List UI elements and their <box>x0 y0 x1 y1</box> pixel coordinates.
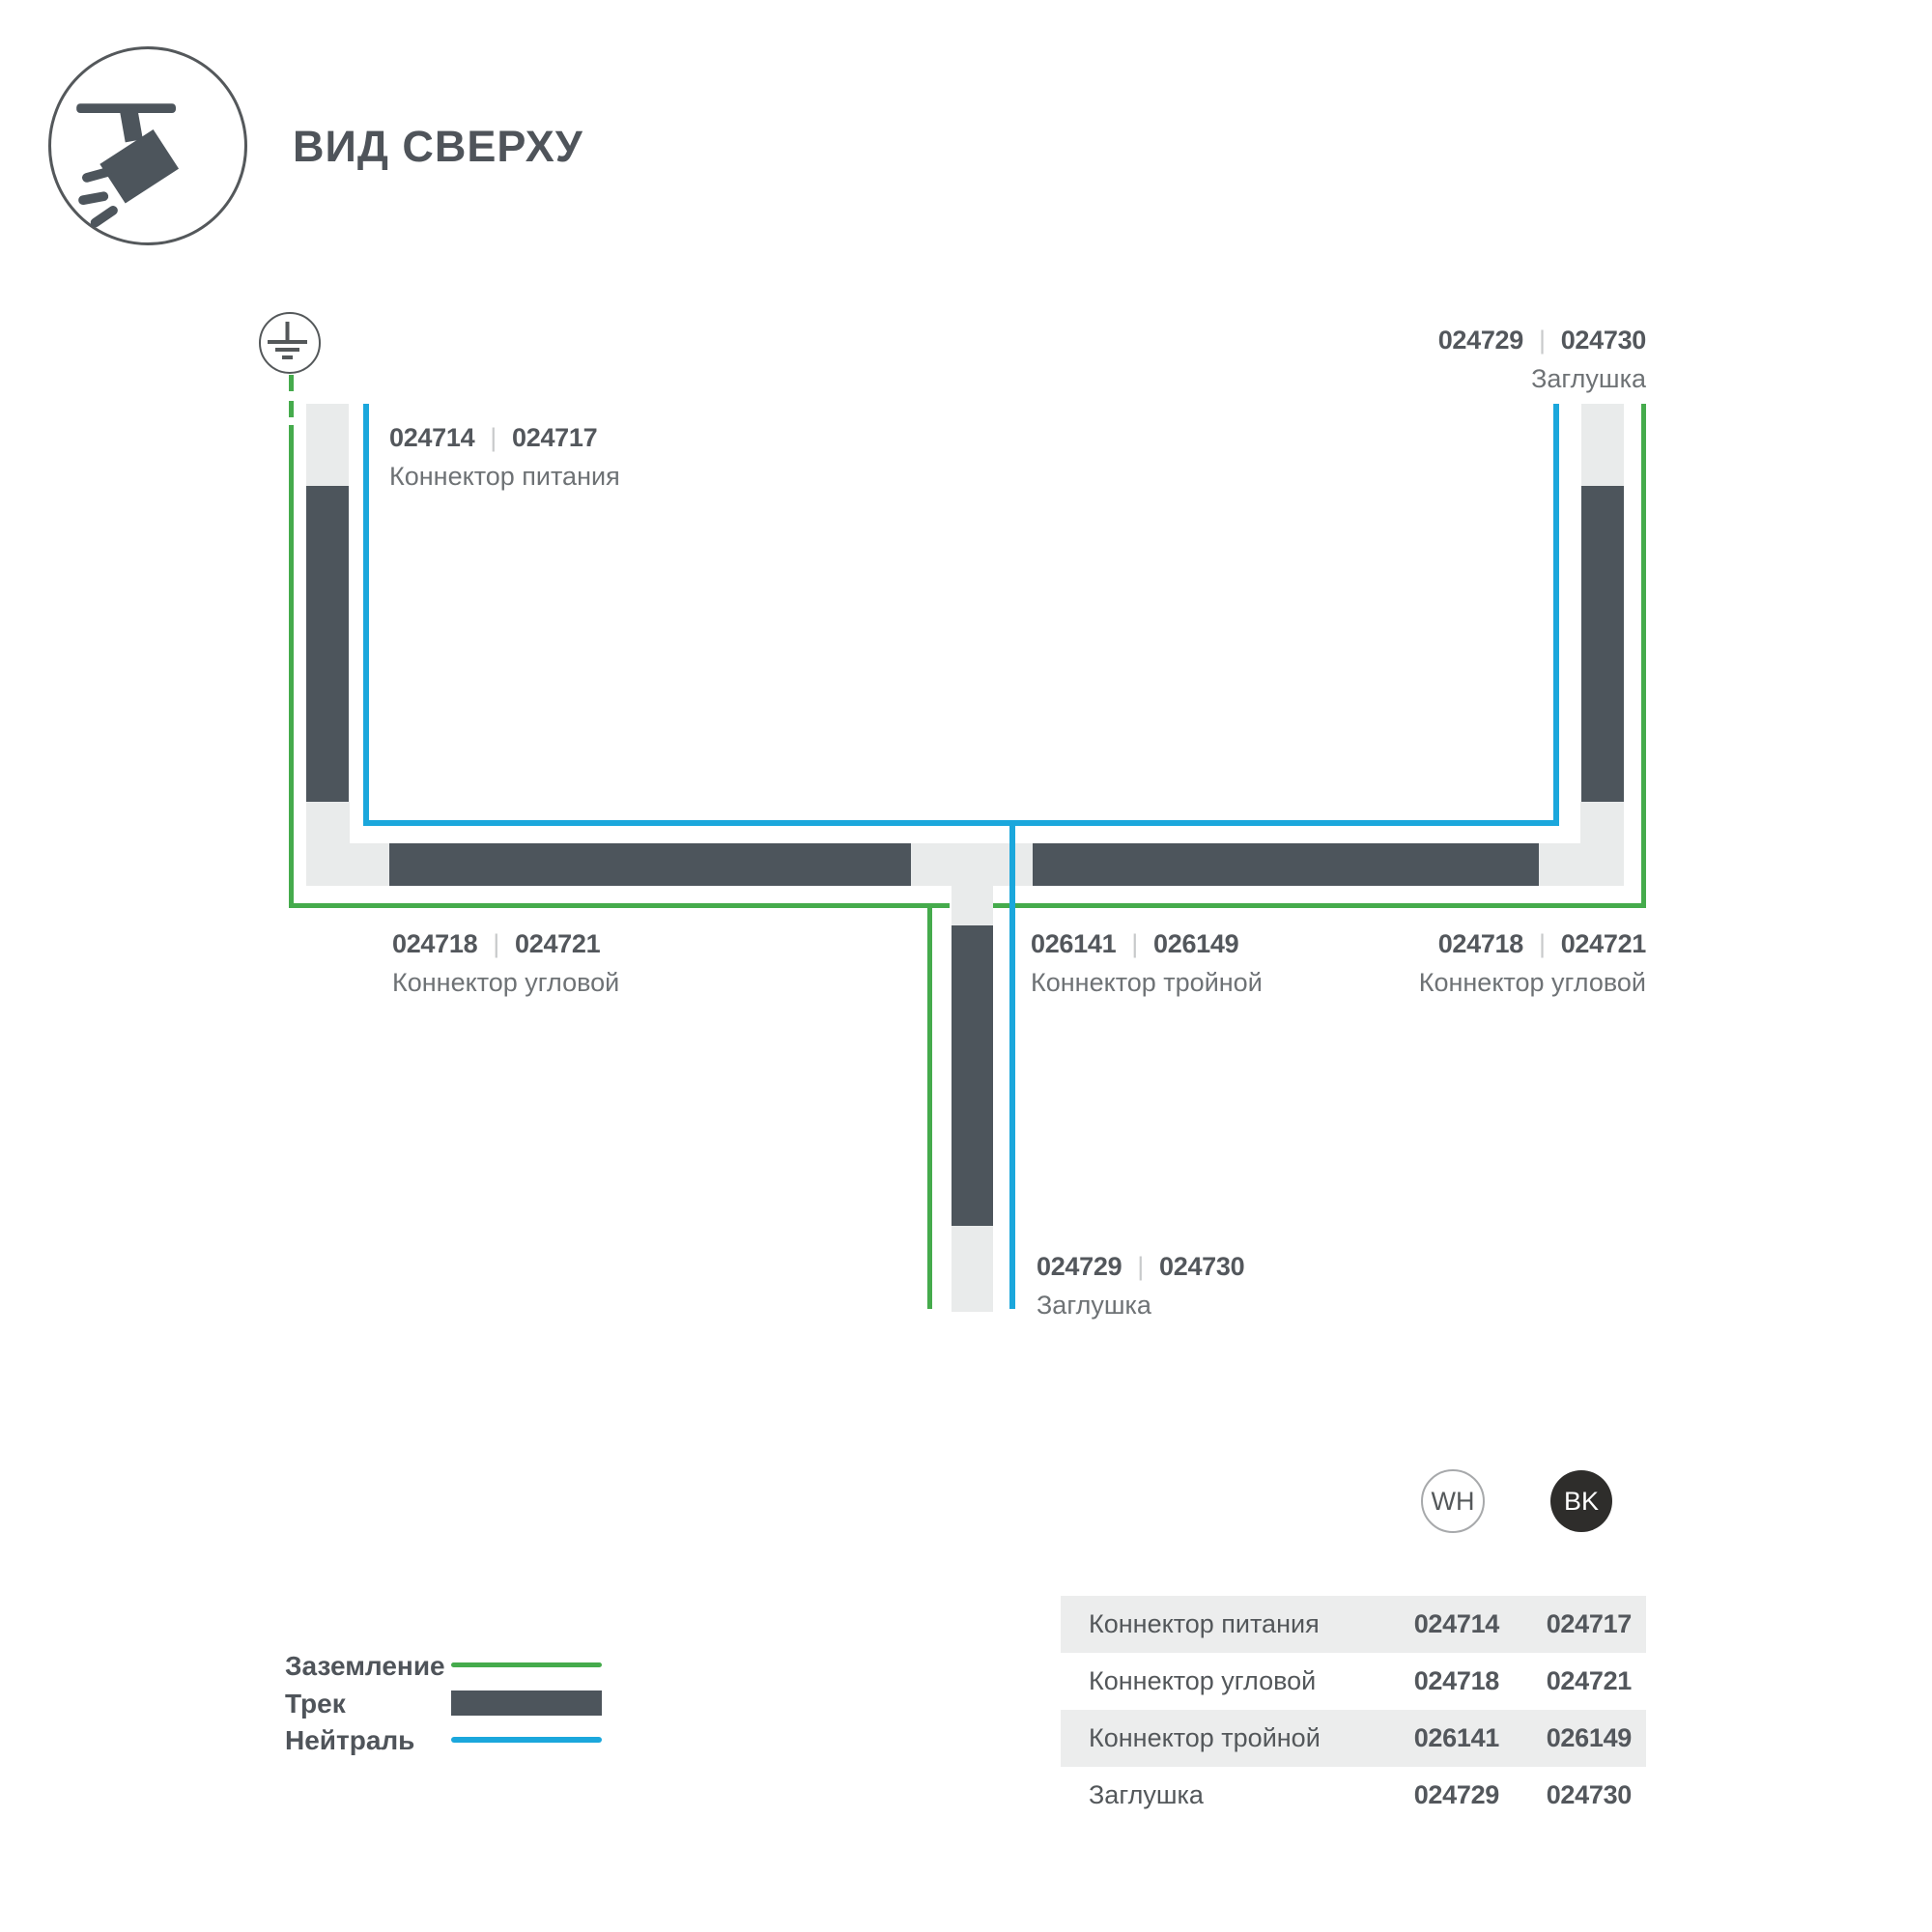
table-row: Коннектор угловой 024718 024721 <box>1061 1653 1646 1710</box>
part-name: Заглушка <box>1089 1780 1410 1810</box>
ground-line-bottom-left <box>289 903 950 908</box>
part-code-wh: 024714 <box>1410 1609 1499 1639</box>
track-branch-vertical <box>952 925 993 1226</box>
code-wh: 024718 <box>392 929 477 958</box>
code-wh: 024718 <box>1438 929 1523 958</box>
code-separator: | <box>474 423 512 452</box>
ground-line-branch-vertical <box>927 903 932 1309</box>
track-right-vertical <box>1581 486 1624 802</box>
label-caption: Коннектор угловой <box>392 968 619 997</box>
code-separator: | <box>477 929 515 958</box>
label-end-cap-bottom: 024729 | 024730 Заглушка <box>1037 1252 1244 1320</box>
neutral-line-branch-vertical <box>1009 820 1015 1309</box>
code-wh: 024729 <box>1438 326 1523 355</box>
ground-symbol <box>259 312 321 374</box>
ground-line-dashed <box>289 375 294 427</box>
code-bk: 024721 <box>515 929 600 958</box>
code-separator: | <box>1523 929 1561 958</box>
end-cap-top-left <box>306 404 349 487</box>
ground-line-left-vertical <box>289 425 294 908</box>
label-corner-connector-right: 024718 | 024721 Коннектор угловой <box>1419 929 1646 997</box>
track-left-vertical <box>306 486 349 802</box>
code-bk: 024730 <box>1159 1252 1244 1281</box>
part-code-wh: 024718 <box>1410 1666 1499 1696</box>
code-wh: 024714 <box>389 423 474 452</box>
legend-label-neutral: Нейтраль <box>285 1725 414 1756</box>
neutral-line-right-vertical <box>1553 404 1559 826</box>
label-power-connector: 024714 | 024717 Коннектор питания <box>389 423 620 491</box>
part-code-bk: 024717 <box>1543 1609 1632 1639</box>
ground-line-bottom-right <box>993 903 1646 908</box>
label-codes: 024714 | 024717 <box>389 423 620 452</box>
track-spotlight-icon <box>51 49 239 237</box>
part-name: Коннектор питания <box>1089 1609 1410 1639</box>
legend-neutral-line-swatch <box>451 1737 602 1743</box>
code-separator: | <box>1116 929 1153 958</box>
code-bk: 024721 <box>1561 929 1646 958</box>
part-name: Коннектор тройной <box>1089 1723 1410 1753</box>
track-bottom-right <box>1033 843 1539 886</box>
ground-line-right-vertical <box>1641 404 1646 908</box>
label-corner-connector-left: 024718 | 024721 Коннектор угловой <box>392 929 619 997</box>
label-caption: Коннектор тройной <box>1031 968 1263 997</box>
code-bk: 026149 <box>1153 929 1238 958</box>
code-separator: | <box>1122 1252 1159 1281</box>
table-row: Заглушка 024729 024730 <box>1061 1767 1646 1824</box>
label-caption: Коннектор питания <box>389 462 620 491</box>
label-codes: 024729 | 024730 <box>1037 1252 1244 1281</box>
part-code-bk: 024721 <box>1543 1666 1632 1696</box>
part-code-bk: 024730 <box>1543 1780 1632 1810</box>
label-codes: 024729 | 024730 <box>1438 326 1646 355</box>
end-cap-branch-bottom <box>952 1226 993 1312</box>
part-name: Коннектор угловой <box>1089 1666 1410 1696</box>
track-bottom-left <box>389 843 911 886</box>
page: ВИД СВЕРХУ 024714 | 024717 <box>0 0 1932 1932</box>
legend-label-ground: Заземление <box>285 1651 445 1682</box>
label-triple-connector: 026141 | 026149 Коннектор тройной <box>1031 929 1263 997</box>
label-caption: Заглушка <box>1037 1291 1244 1320</box>
label-end-cap-top-right: 024729 | 024730 Заглушка <box>1438 326 1646 393</box>
end-cap-top-right <box>1581 404 1624 487</box>
neutral-line-bottom <box>363 820 1559 826</box>
legend-track-bar-swatch <box>451 1690 602 1716</box>
code-separator: | <box>1523 326 1561 355</box>
label-caption: Заглушка <box>1438 364 1646 393</box>
corner-connector-left-horizontal <box>306 843 389 886</box>
label-caption: Коннектор угловой <box>1419 968 1646 997</box>
variant-chip-white: WH <box>1421 1469 1485 1533</box>
label-codes: 024718 | 024721 <box>1419 929 1646 958</box>
table-row: Коннектор тройной 026141 026149 <box>1061 1710 1646 1767</box>
code-wh: 024729 <box>1037 1252 1122 1281</box>
page-title: ВИД СВЕРХУ <box>293 122 583 172</box>
code-wh: 026141 <box>1031 929 1116 958</box>
track-spotlight-badge <box>48 46 247 245</box>
part-code-wh: 024729 <box>1410 1780 1499 1810</box>
parts-table: Коннектор питания 024714 024717 Коннекто… <box>1061 1596 1646 1824</box>
part-code-bk: 026149 <box>1543 1723 1632 1753</box>
table-row: Коннектор питания 024714 024717 <box>1061 1596 1646 1653</box>
neutral-line-left-vertical <box>363 404 369 826</box>
triple-connector-stem <box>952 886 993 925</box>
earth-icon <box>261 314 314 367</box>
part-code-wh: 026141 <box>1410 1723 1499 1753</box>
code-bk: 024717 <box>512 423 597 452</box>
corner-connector-right-horizontal <box>1539 843 1624 886</box>
variant-chip-black: BK <box>1550 1470 1612 1532</box>
label-codes: 026141 | 026149 <box>1031 929 1263 958</box>
legend-ground-line-swatch <box>451 1662 602 1667</box>
label-codes: 024718 | 024721 <box>392 929 619 958</box>
code-bk: 024730 <box>1561 326 1646 355</box>
legend-label-track: Трек <box>285 1689 346 1719</box>
